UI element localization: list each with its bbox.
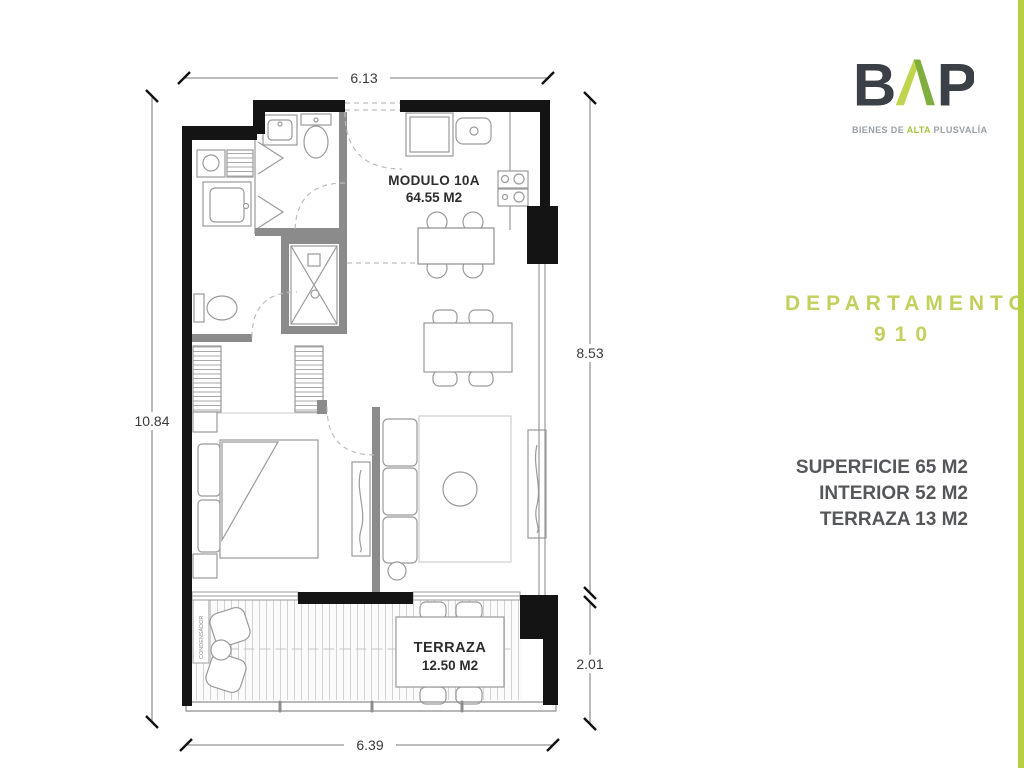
- pouf: [388, 562, 406, 580]
- sofa-cushion: [383, 419, 417, 466]
- bap-logo: B P BIENES DE ALTA PLUSVALÍA: [852, 56, 982, 135]
- bedroom-bench: [352, 462, 370, 556]
- shelves: [227, 150, 253, 177]
- bap-logo-mark: B P: [852, 56, 974, 118]
- area-stats: SUPERFICIE 65 M2 INTERIOR 52 M2 TERRAZA …: [704, 455, 968, 533]
- dim-right-lower: 2.01: [576, 656, 603, 672]
- bifold-door: [258, 142, 283, 174]
- bathroom-hall: [194, 246, 337, 324]
- module-label: MODULO 10A: [388, 173, 480, 188]
- module-area: 64.55 M2: [406, 190, 462, 205]
- logo-letter-b: B: [853, 56, 896, 118]
- coffee-table: [443, 472, 477, 506]
- stat-interior: INTERIOR 52 M2: [704, 481, 968, 507]
- tagline-alta: ALTA: [907, 125, 931, 135]
- kitchen-island: [418, 228, 494, 264]
- sofa-cushion: [383, 468, 417, 515]
- nightstand: [193, 554, 217, 578]
- dim-bottom: 6.39: [356, 737, 383, 753]
- tagline-suffix: PLUSVALÍA: [934, 125, 988, 135]
- tagline-prefix: BIENES DE: [852, 125, 904, 135]
- condenser-label: CONDENSADOR: [199, 616, 205, 659]
- pillow: [198, 500, 220, 552]
- stat-terraza: TERRAZA 13 M2: [704, 507, 968, 533]
- dim-top: 6.13: [350, 70, 377, 86]
- dining-set: [424, 310, 512, 386]
- dim-left: 10.84: [134, 413, 169, 429]
- nightstand: [193, 412, 217, 432]
- floor-plan: 6.13 10.84 8.53 2.01 6.39 MODULO 10A 64.…: [0, 0, 640, 768]
- logo-letter-a-icon: [896, 60, 935, 106]
- entry-door-swing: [345, 112, 402, 169]
- bifold-door: [258, 196, 283, 228]
- laundry-closet: [197, 140, 283, 234]
- unit-title: DEPARTAMENTO 910: [785, 288, 1024, 350]
- dining-table: [424, 323, 512, 372]
- dim-right-upper: 8.53: [576, 345, 603, 361]
- unit-number: 910: [785, 319, 1024, 350]
- logo-letter-p: P: [937, 56, 974, 118]
- logo-tagline: BIENES DE ALTA PLUSVALÍA: [852, 125, 982, 135]
- wardrobes: [193, 346, 323, 412]
- stat-superficie: SUPERFICIE 65 M2: [704, 455, 968, 481]
- sofa-cushion: [383, 517, 417, 563]
- terrace: [186, 592, 556, 711]
- brochure-page: 6.13 10.84 8.53 2.01 6.39 MODULO 10A 64.…: [0, 0, 1024, 768]
- terrace-label: TERRAZA: [414, 640, 487, 656]
- terrace-area: 12.50 M2: [422, 658, 478, 673]
- pillow: [198, 444, 220, 496]
- bedroom: [193, 412, 370, 578]
- living-room: [383, 416, 546, 580]
- balcony-railing: [186, 702, 556, 711]
- unit-title-text: DEPARTAMENTO: [785, 288, 1024, 319]
- accent-edge-stripe: [1018, 0, 1024, 768]
- toilet: [194, 294, 204, 322]
